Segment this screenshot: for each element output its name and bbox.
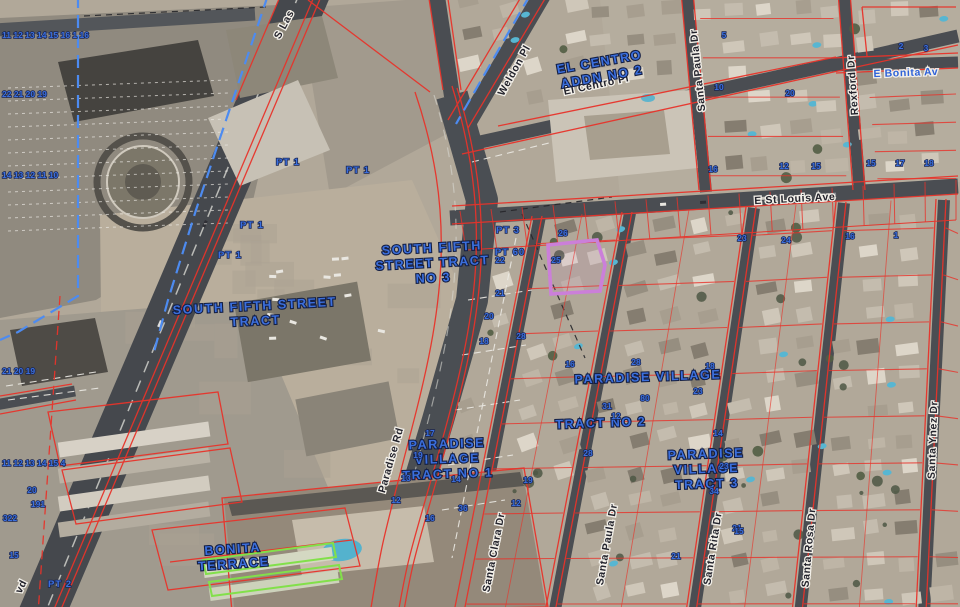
lot-number: 16 bbox=[708, 164, 718, 174]
lot-number: 15 bbox=[866, 158, 876, 168]
lot-number: 20 bbox=[484, 311, 494, 321]
lot-number: 12 bbox=[779, 161, 789, 171]
house bbox=[868, 437, 886, 449]
house bbox=[724, 3, 743, 16]
house bbox=[759, 245, 777, 259]
lot-number: 36 bbox=[458, 503, 468, 513]
house bbox=[796, 306, 813, 322]
lot-number: 34 bbox=[709, 486, 719, 496]
lot-number: 19 bbox=[523, 475, 533, 485]
lot-number: 11 12 13 14 15 4 bbox=[2, 458, 66, 468]
lot-number: 191 bbox=[31, 499, 45, 509]
selected-parcel-highlight[interactable] bbox=[548, 240, 605, 294]
pt-parcel-label: PT 3 bbox=[496, 225, 520, 236]
house bbox=[661, 0, 682, 15]
house bbox=[756, 3, 772, 16]
house bbox=[729, 589, 746, 604]
house bbox=[929, 585, 954, 603]
house bbox=[899, 214, 916, 230]
lot-number: 10 bbox=[714, 82, 724, 92]
lot-number: 19 bbox=[413, 450, 423, 460]
house bbox=[762, 530, 778, 543]
lot-number: 24 bbox=[781, 235, 791, 245]
house bbox=[656, 60, 672, 75]
house bbox=[898, 557, 914, 572]
lot-number: 15 bbox=[9, 550, 19, 560]
house bbox=[750, 156, 767, 171]
lot-number: 26 bbox=[558, 228, 568, 238]
house bbox=[589, 33, 611, 46]
house bbox=[828, 587, 848, 602]
lot-number: 12 bbox=[511, 498, 521, 508]
house bbox=[894, 303, 914, 320]
house bbox=[820, 5, 838, 19]
house bbox=[867, 551, 885, 565]
lot-number: 31 bbox=[602, 401, 612, 411]
lot-number: 13 bbox=[401, 473, 411, 483]
lot-number: 28 bbox=[516, 331, 526, 341]
street-label: E Bonita Av bbox=[873, 66, 938, 80]
house bbox=[896, 435, 913, 449]
house bbox=[591, 6, 609, 18]
house bbox=[900, 247, 919, 261]
house bbox=[759, 31, 779, 47]
lot-number: 23 bbox=[737, 233, 747, 243]
tract-label: BONITATERRACE bbox=[197, 540, 270, 574]
house bbox=[825, 158, 849, 173]
lot-number: 22 21 20 19 bbox=[2, 89, 47, 99]
house bbox=[653, 33, 676, 46]
house bbox=[831, 527, 855, 541]
lot-number: 21 20 19 bbox=[2, 366, 35, 376]
lot-number: 15 bbox=[734, 526, 744, 536]
house bbox=[626, 4, 645, 19]
house bbox=[856, 338, 880, 355]
lot-number: 5 bbox=[722, 30, 727, 40]
lot-number: 18 bbox=[705, 361, 715, 371]
aerial-parcel-map[interactable]: S LasWeldon PlEl Centro PlSanta Paula Dr… bbox=[0, 0, 960, 607]
house bbox=[831, 436, 851, 451]
house bbox=[921, 90, 944, 105]
lot-number: 17 bbox=[425, 428, 435, 438]
house bbox=[627, 34, 645, 46]
house bbox=[863, 278, 882, 291]
house bbox=[935, 551, 958, 567]
house bbox=[902, 458, 919, 473]
lot-number: 15 bbox=[811, 161, 821, 171]
lot-number: 22 bbox=[495, 255, 505, 265]
pt-parcel-label: PT 1 bbox=[346, 165, 370, 176]
house bbox=[891, 1, 909, 16]
lot-number: 12 bbox=[391, 495, 401, 505]
lot-number: 16 bbox=[845, 231, 855, 241]
lot-number: 21 bbox=[671, 551, 681, 561]
highlight-layer bbox=[548, 240, 605, 294]
pt-parcel-label: PT 1 bbox=[218, 250, 242, 261]
lot-number: 16 bbox=[565, 359, 575, 369]
house bbox=[725, 155, 743, 170]
lot-number: 25 bbox=[551, 255, 561, 265]
house bbox=[823, 34, 842, 48]
lot-number: 23 bbox=[719, 461, 729, 471]
lot-number: 2 bbox=[899, 41, 904, 51]
pt-parcel-label: PT 1 bbox=[240, 220, 264, 231]
house bbox=[895, 520, 918, 535]
lot-number: 14 bbox=[451, 474, 461, 484]
lot-number: 18 bbox=[479, 336, 489, 346]
house bbox=[899, 365, 920, 379]
lot-number: 3 bbox=[924, 43, 929, 53]
house bbox=[748, 90, 771, 103]
lot-number: 11 12 13 14 15 16 1 16 bbox=[2, 30, 89, 40]
house bbox=[794, 280, 812, 293]
lot-number: 28 bbox=[583, 448, 593, 458]
lot-number: 17 bbox=[895, 158, 905, 168]
lot-number: 20 bbox=[27, 485, 37, 495]
house bbox=[790, 118, 813, 134]
lot-number: 1 bbox=[894, 230, 899, 240]
house bbox=[898, 401, 914, 413]
house bbox=[888, 131, 908, 144]
house bbox=[868, 404, 888, 416]
lot-number: 14 bbox=[713, 428, 723, 438]
lot-number: 322 bbox=[3, 513, 17, 523]
lot-number: 20 bbox=[785, 88, 795, 98]
lot-number: 12 bbox=[611, 411, 621, 421]
house bbox=[764, 395, 781, 412]
lot-number: 16 bbox=[425, 513, 435, 523]
house bbox=[836, 494, 852, 508]
pt-parcel-label: PT 1 bbox=[276, 157, 300, 168]
house bbox=[796, 0, 812, 14]
pt-parcel-label: PT 2 bbox=[48, 579, 72, 590]
lot-number: 23 bbox=[693, 386, 703, 396]
lot-number: 28 bbox=[631, 357, 641, 367]
lot-number: 21 bbox=[495, 288, 505, 298]
tract-label: PARADISEVILLAGETRACT 3 bbox=[667, 446, 745, 493]
lot-number: 18 bbox=[924, 158, 934, 168]
house bbox=[816, 100, 836, 112]
map-viewport[interactable]: S LasWeldon PlEl Centro PlSanta Paula Dr… bbox=[0, 0, 960, 607]
lot-number: 14 13 12 11 10 bbox=[2, 170, 59, 180]
lot-number: 80 bbox=[640, 393, 650, 403]
